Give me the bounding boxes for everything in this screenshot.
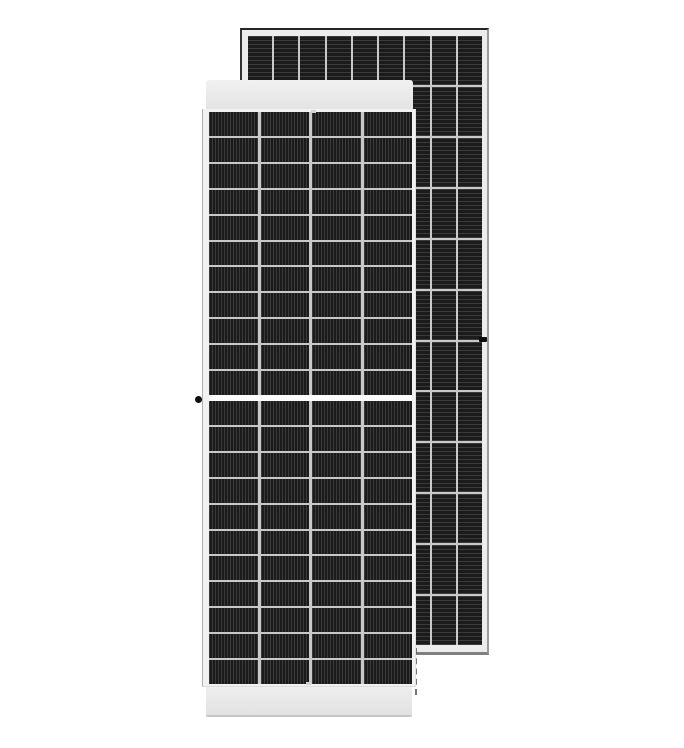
front-panel-cell	[312, 660, 361, 684]
rear-panel-cell	[432, 36, 456, 85]
rear-panel-cell	[248, 443, 272, 492]
rear-panel-cell	[353, 138, 377, 187]
rear-panel-cell	[274, 291, 298, 340]
rear-panel-cell	[248, 596, 272, 645]
rear-panel-cell	[432, 291, 456, 340]
rear-panel-cell	[458, 240, 482, 289]
rear-panel-cell	[458, 443, 482, 492]
rear-panel-cell	[248, 138, 272, 187]
rear-panel-cell	[274, 87, 298, 136]
rear-panel-cell	[405, 138, 429, 187]
frame-notch-bottom	[306, 682, 311, 685]
rear-panel-cell	[405, 596, 429, 645]
rear-panel-cell	[379, 494, 403, 543]
rear-panel-cell	[353, 596, 377, 645]
rear-panel-cell	[353, 189, 377, 238]
rear-panel-cell	[405, 342, 429, 391]
rear-panel-cell	[405, 443, 429, 492]
rear-panel-cell	[458, 596, 482, 645]
rear-panel-cell	[353, 494, 377, 543]
rear-solar-panel	[240, 28, 489, 655]
rear-panel-cell	[353, 240, 377, 289]
rear-panel-cell	[327, 596, 351, 645]
rear-panel-cell	[353, 342, 377, 391]
rear-panel-cell	[274, 494, 298, 543]
rear-panel-cell	[379, 138, 403, 187]
rear-panel-cell	[379, 36, 403, 85]
rear-panel-cell	[458, 189, 482, 238]
rear-panel-cell	[248, 392, 272, 441]
rear-panel-cell	[248, 189, 272, 238]
rear-panel-cell	[248, 545, 272, 594]
rear-panel-cell	[327, 392, 351, 441]
rear-panel-cell	[379, 443, 403, 492]
rear-panel-cell	[353, 36, 377, 85]
rear-panel-cell	[458, 87, 482, 136]
product-photo-solar-panels	[0, 0, 684, 748]
rear-panel-cell	[327, 545, 351, 594]
rear-panel-cell	[379, 342, 403, 391]
rear-panel-cell	[353, 87, 377, 136]
rear-panel-cell	[432, 596, 456, 645]
rear-panel-cell	[274, 545, 298, 594]
rear-frame-grounding-hole	[479, 337, 487, 342]
front-panel-bottom-rail	[206, 687, 412, 717]
rear-panel-cell	[379, 596, 403, 645]
rear-panel-cell	[405, 87, 429, 136]
rear-panel-cell	[327, 36, 351, 85]
rear-panel-cell	[405, 545, 429, 594]
rear-panel-cell	[379, 392, 403, 441]
rear-panel-cell	[300, 189, 324, 238]
rear-panel-cell	[327, 291, 351, 340]
rear-panel-cell	[327, 189, 351, 238]
rear-panel-cell	[405, 291, 429, 340]
rear-panel-cell	[248, 342, 272, 391]
rear-panel-cell	[274, 138, 298, 187]
rear-panel-cell	[379, 291, 403, 340]
rear-panel-cell	[248, 240, 272, 289]
rear-panel-cell	[300, 443, 324, 492]
rear-panel-cell	[405, 240, 429, 289]
rear-panel-cell	[379, 87, 403, 136]
rear-panel-cell	[248, 87, 272, 136]
front-panel-cell	[364, 660, 413, 684]
rear-panel-cell	[274, 392, 298, 441]
rear-panel-cell	[327, 240, 351, 289]
rear-panel-cell	[327, 87, 351, 136]
rear-panel-cell	[300, 494, 324, 543]
rear-panel-cell	[432, 494, 456, 543]
rear-panel-cell	[379, 189, 403, 238]
rear-panel-cell	[274, 443, 298, 492]
rear-panel-cell	[327, 138, 351, 187]
rear-panel-cell	[458, 494, 482, 543]
rear-panel-cell	[458, 291, 482, 340]
rear-panel-cell	[274, 36, 298, 85]
front-frame-grounding-hole	[195, 396, 202, 403]
rear-panel-cell	[274, 189, 298, 238]
rear-panel-cell	[300, 392, 324, 441]
rear-panel-cell	[353, 443, 377, 492]
rear-panel-cell	[327, 342, 351, 391]
rear-panel-cell	[432, 138, 456, 187]
rear-panel-cell	[353, 545, 377, 594]
rear-panel-cell	[300, 596, 324, 645]
rear-panel-cell	[432, 342, 456, 391]
rear-panel-cell	[405, 189, 429, 238]
rear-panel-cell	[274, 596, 298, 645]
front-panel-cell	[261, 660, 310, 684]
rear-panel-cell	[327, 494, 351, 543]
rear-panel-cell	[432, 87, 456, 136]
rear-panel-cell	[458, 545, 482, 594]
rear-panel-cell	[248, 494, 272, 543]
rear-panel-cell	[458, 36, 482, 85]
rear-panel-cell	[248, 291, 272, 340]
rear-panel-cell	[432, 240, 456, 289]
rear-panel-cell-grid	[248, 36, 482, 645]
rear-panel-cell	[353, 291, 377, 340]
rear-panel-cell	[300, 138, 324, 187]
rear-panel-cell	[300, 291, 324, 340]
rear-panel-cell	[300, 36, 324, 85]
rear-panel-cell	[300, 342, 324, 391]
rear-panel-cell	[458, 138, 482, 187]
rear-panel-cell	[300, 545, 324, 594]
rear-panel-cell	[405, 494, 429, 543]
rear-panel-cell	[300, 87, 324, 136]
rear-panel-cell	[379, 240, 403, 289]
rear-panel-cell	[405, 36, 429, 85]
rear-panel-cell	[248, 36, 272, 85]
rear-panel-cell	[432, 545, 456, 594]
front-panel-cell	[209, 660, 258, 684]
rear-panel-cell	[300, 240, 324, 289]
rear-panel-cell	[458, 392, 482, 441]
rear-panel-cell	[432, 189, 456, 238]
rear-panel-cell	[432, 392, 456, 441]
rear-panel-cell	[432, 443, 456, 492]
rear-panel-cell	[405, 392, 429, 441]
rear-panel-cell	[353, 392, 377, 441]
rear-panel-cell	[379, 545, 403, 594]
panel-edge-dashed-shadow	[415, 648, 417, 695]
rear-panel-cell	[274, 240, 298, 289]
rear-panel-cell	[458, 342, 482, 391]
rear-panel-cell	[274, 342, 298, 391]
rear-panel-cell	[327, 443, 351, 492]
